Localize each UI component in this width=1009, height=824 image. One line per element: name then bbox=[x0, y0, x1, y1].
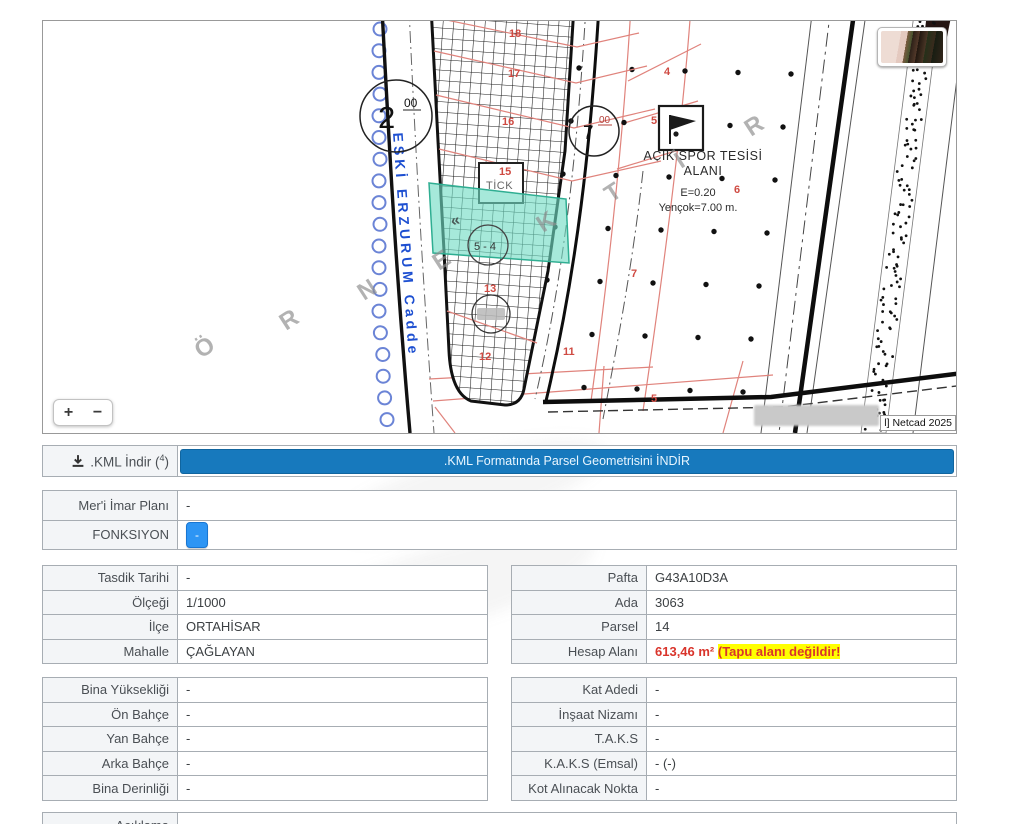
table-row: Açıklama bbox=[43, 813, 956, 824]
svg-text:00: 00 bbox=[404, 96, 418, 110]
row-value: - bbox=[178, 703, 487, 727]
svg-text:13: 13 bbox=[484, 283, 496, 295]
plan-table: Mer'i İmar Planı - FONKSIYON - bbox=[42, 490, 957, 550]
table-row: Ölçeği 1/1000 bbox=[43, 590, 487, 615]
table-row: Mer'i İmar Planı - bbox=[43, 491, 956, 520]
row-value: - bbox=[647, 703, 956, 727]
row-label: Parsel bbox=[512, 615, 647, 639]
kml-download-button[interactable]: .KML Formatında Parsel Geometrisini İNDİ… bbox=[180, 449, 954, 474]
svg-text:7: 7 bbox=[631, 268, 637, 280]
kml-download-label: .KML İndir (4) bbox=[43, 446, 178, 476]
zoom-out-button[interactable]: − bbox=[86, 401, 110, 424]
row-label: İnşaat Nizamı bbox=[512, 703, 647, 727]
svg-text:R: R bbox=[740, 110, 769, 142]
table-row: Bina Derinliği - bbox=[43, 775, 487, 800]
row-label: Kot Alınacak Nokta bbox=[512, 776, 647, 800]
svg-text:6: 6 bbox=[734, 184, 740, 196]
row-label: Açıklama bbox=[43, 813, 178, 824]
row-label: Ön Bahçe bbox=[43, 703, 178, 727]
road-lines-right bbox=[761, 21, 956, 433]
map-attribution: l] Netcad 2025 bbox=[880, 415, 956, 431]
row-label: Tasdik Tarihi bbox=[43, 566, 178, 590]
table-row: FONKSIYON - bbox=[43, 520, 956, 550]
table-row: Tasdik Tarihi - bbox=[43, 566, 487, 590]
row-value: - bbox=[178, 491, 956, 520]
row-label: Yan Bahçe bbox=[43, 727, 178, 751]
row-value bbox=[178, 813, 956, 824]
svg-text:Ö: Ö bbox=[190, 331, 220, 364]
row-label: Arka Bahçe bbox=[43, 752, 178, 776]
fonksiyon-button[interactable]: - bbox=[186, 522, 208, 548]
table-row: Pafta G43A10D3A bbox=[512, 566, 956, 590]
sport-area-yencok: Yençok=7.00 m. bbox=[659, 202, 738, 214]
table-row: Arka Bahçe - bbox=[43, 751, 487, 776]
parcel-info-table-left: Tasdik Tarihi - Ölçeği 1/1000 İlçe ORTAH… bbox=[42, 565, 488, 664]
row-value: - bbox=[178, 678, 487, 702]
row-label: Mahalle bbox=[43, 640, 178, 664]
row-label: Bina Yüksekliği bbox=[43, 678, 178, 702]
svg-text:11: 11 bbox=[563, 346, 575, 358]
svg-text:00: 00 bbox=[599, 115, 611, 126]
row-value: 3063 bbox=[647, 591, 956, 615]
svg-text:17: 17 bbox=[508, 68, 520, 80]
svg-text:12: 12 bbox=[479, 351, 491, 363]
zoning-table-right: Kat Adedi - İnşaat Nizamı - T.A.K.S - K.… bbox=[511, 677, 957, 801]
table-row: İnşaat Nizamı - bbox=[512, 702, 956, 727]
svg-text:16: 16 bbox=[502, 116, 514, 128]
row-value: - bbox=[178, 776, 487, 800]
row-label: Kat Adedi bbox=[512, 678, 647, 702]
svg-text:4: 4 bbox=[664, 66, 671, 78]
row-value: - bbox=[178, 566, 487, 590]
overview-minimap[interactable] bbox=[877, 27, 947, 67]
row-label: Ölçeği bbox=[43, 591, 178, 615]
sport-area-label-line2: ALANI bbox=[684, 164, 723, 178]
table-row: Bina Yüksekliği - bbox=[43, 678, 487, 702]
row-value: ORTAHİSAR bbox=[178, 615, 487, 639]
sport-facility-symbol bbox=[659, 106, 703, 150]
parcel-info-table-right: Pafta G43A10D3A Ada 3063 Parsel 14 Hesap… bbox=[511, 565, 957, 664]
sport-area-label-line1: AÇIK SPOR TESİSİ bbox=[644, 149, 763, 163]
row-value: 1/1000 bbox=[178, 591, 487, 615]
redacted-attribution-blur bbox=[754, 405, 879, 426]
table-row: T.A.K.S - bbox=[512, 726, 956, 751]
svg-text:5: 5 bbox=[651, 115, 657, 127]
row-value: - bbox=[178, 752, 487, 776]
table-row: Ön Bahçe - bbox=[43, 702, 487, 727]
overview-minimap-image bbox=[881, 31, 943, 63]
row-value: - bbox=[178, 727, 487, 751]
aciklama-table: Açıklama bbox=[42, 812, 957, 824]
table-row: Mahalle ÇAĞLAYAN bbox=[43, 639, 487, 664]
table-row: Ada 3063 bbox=[512, 590, 956, 615]
cadastral-map[interactable]: AÇIK SPOR TESİSİ ALANI E=0.20 Yençok=7.0… bbox=[42, 20, 957, 434]
svg-text:15: 15 bbox=[499, 166, 511, 178]
table-row: Hesap Alanı 613,46 m² (Tapu alanı değild… bbox=[512, 639, 956, 664]
row-label: T.A.K.S bbox=[512, 727, 647, 751]
subject-parcel-circle-label: 5 - 4 bbox=[474, 241, 496, 253]
download-icon bbox=[71, 454, 85, 468]
row-label: Ada bbox=[512, 591, 647, 615]
row-label: Mer'i İmar Planı bbox=[43, 491, 178, 520]
zoning-table-left: Bina Yüksekliği - Ön Bahçe - Yan Bahçe -… bbox=[42, 677, 488, 801]
cadastral-map-canvas: AÇIK SPOR TESİSİ ALANI E=0.20 Yençok=7.0… bbox=[43, 21, 956, 433]
hesap-area-number: 613,46 m² bbox=[655, 644, 718, 659]
svg-text:T: T bbox=[600, 177, 627, 208]
row-label: Pafta bbox=[512, 566, 647, 590]
row-label: İlçe bbox=[43, 615, 178, 639]
row-value: G43A10D3A bbox=[647, 566, 956, 590]
imar-durumu-page: AÇIK SPOR TESİSİ ALANI E=0.20 Yençok=7.0… bbox=[0, 0, 1009, 824]
sport-area-emsal: E=0.20 bbox=[680, 187, 715, 199]
row-label: Bina Derinliği bbox=[43, 776, 178, 800]
redacted-note bbox=[477, 308, 505, 320]
row-label: FONKSIYON bbox=[43, 521, 178, 550]
zoom-in-button[interactable]: + bbox=[57, 401, 81, 424]
row-value: - bbox=[647, 776, 956, 800]
table-row: Kat Adedi - bbox=[512, 678, 956, 702]
row-value: 14 bbox=[647, 615, 956, 639]
table-row: K.A.K.S (Emsal) - (-) bbox=[512, 751, 956, 776]
svg-text:R: R bbox=[275, 304, 304, 336]
row-value: - (-) bbox=[647, 752, 956, 776]
row-value: - bbox=[647, 727, 956, 751]
table-row: Parsel 14 bbox=[512, 614, 956, 639]
table-row: Yan Bahçe - bbox=[43, 726, 487, 751]
table-row: Kot Alınacak Nokta - bbox=[512, 775, 956, 800]
junction-circle-small: 7 00 bbox=[569, 106, 619, 156]
row-label: Hesap Alanı bbox=[512, 640, 647, 664]
row-label: K.A.K.S (Emsal) bbox=[512, 752, 647, 776]
svg-text:5: 5 bbox=[651, 393, 657, 405]
table-row: İlçe ORTAHİSAR bbox=[43, 614, 487, 639]
row-value: ÇAĞLAYAN bbox=[178, 640, 487, 664]
hesap-alani-value: 613,46 m² (Tapu alanı değildir! bbox=[647, 640, 956, 664]
map-zoom-control: + − bbox=[53, 399, 113, 426]
hesap-area-warning: (Tapu alanı değildir! bbox=[718, 644, 841, 659]
kml-download-row: .KML İndir (4) .KML Formatında Parsel Ge… bbox=[42, 445, 957, 477]
row-value: - bbox=[647, 678, 956, 702]
svg-text:7: 7 bbox=[583, 123, 594, 144]
svg-text:N: N bbox=[353, 274, 382, 306]
svg-text:18: 18 bbox=[509, 28, 521, 40]
svg-text:2: 2 bbox=[378, 100, 395, 135]
